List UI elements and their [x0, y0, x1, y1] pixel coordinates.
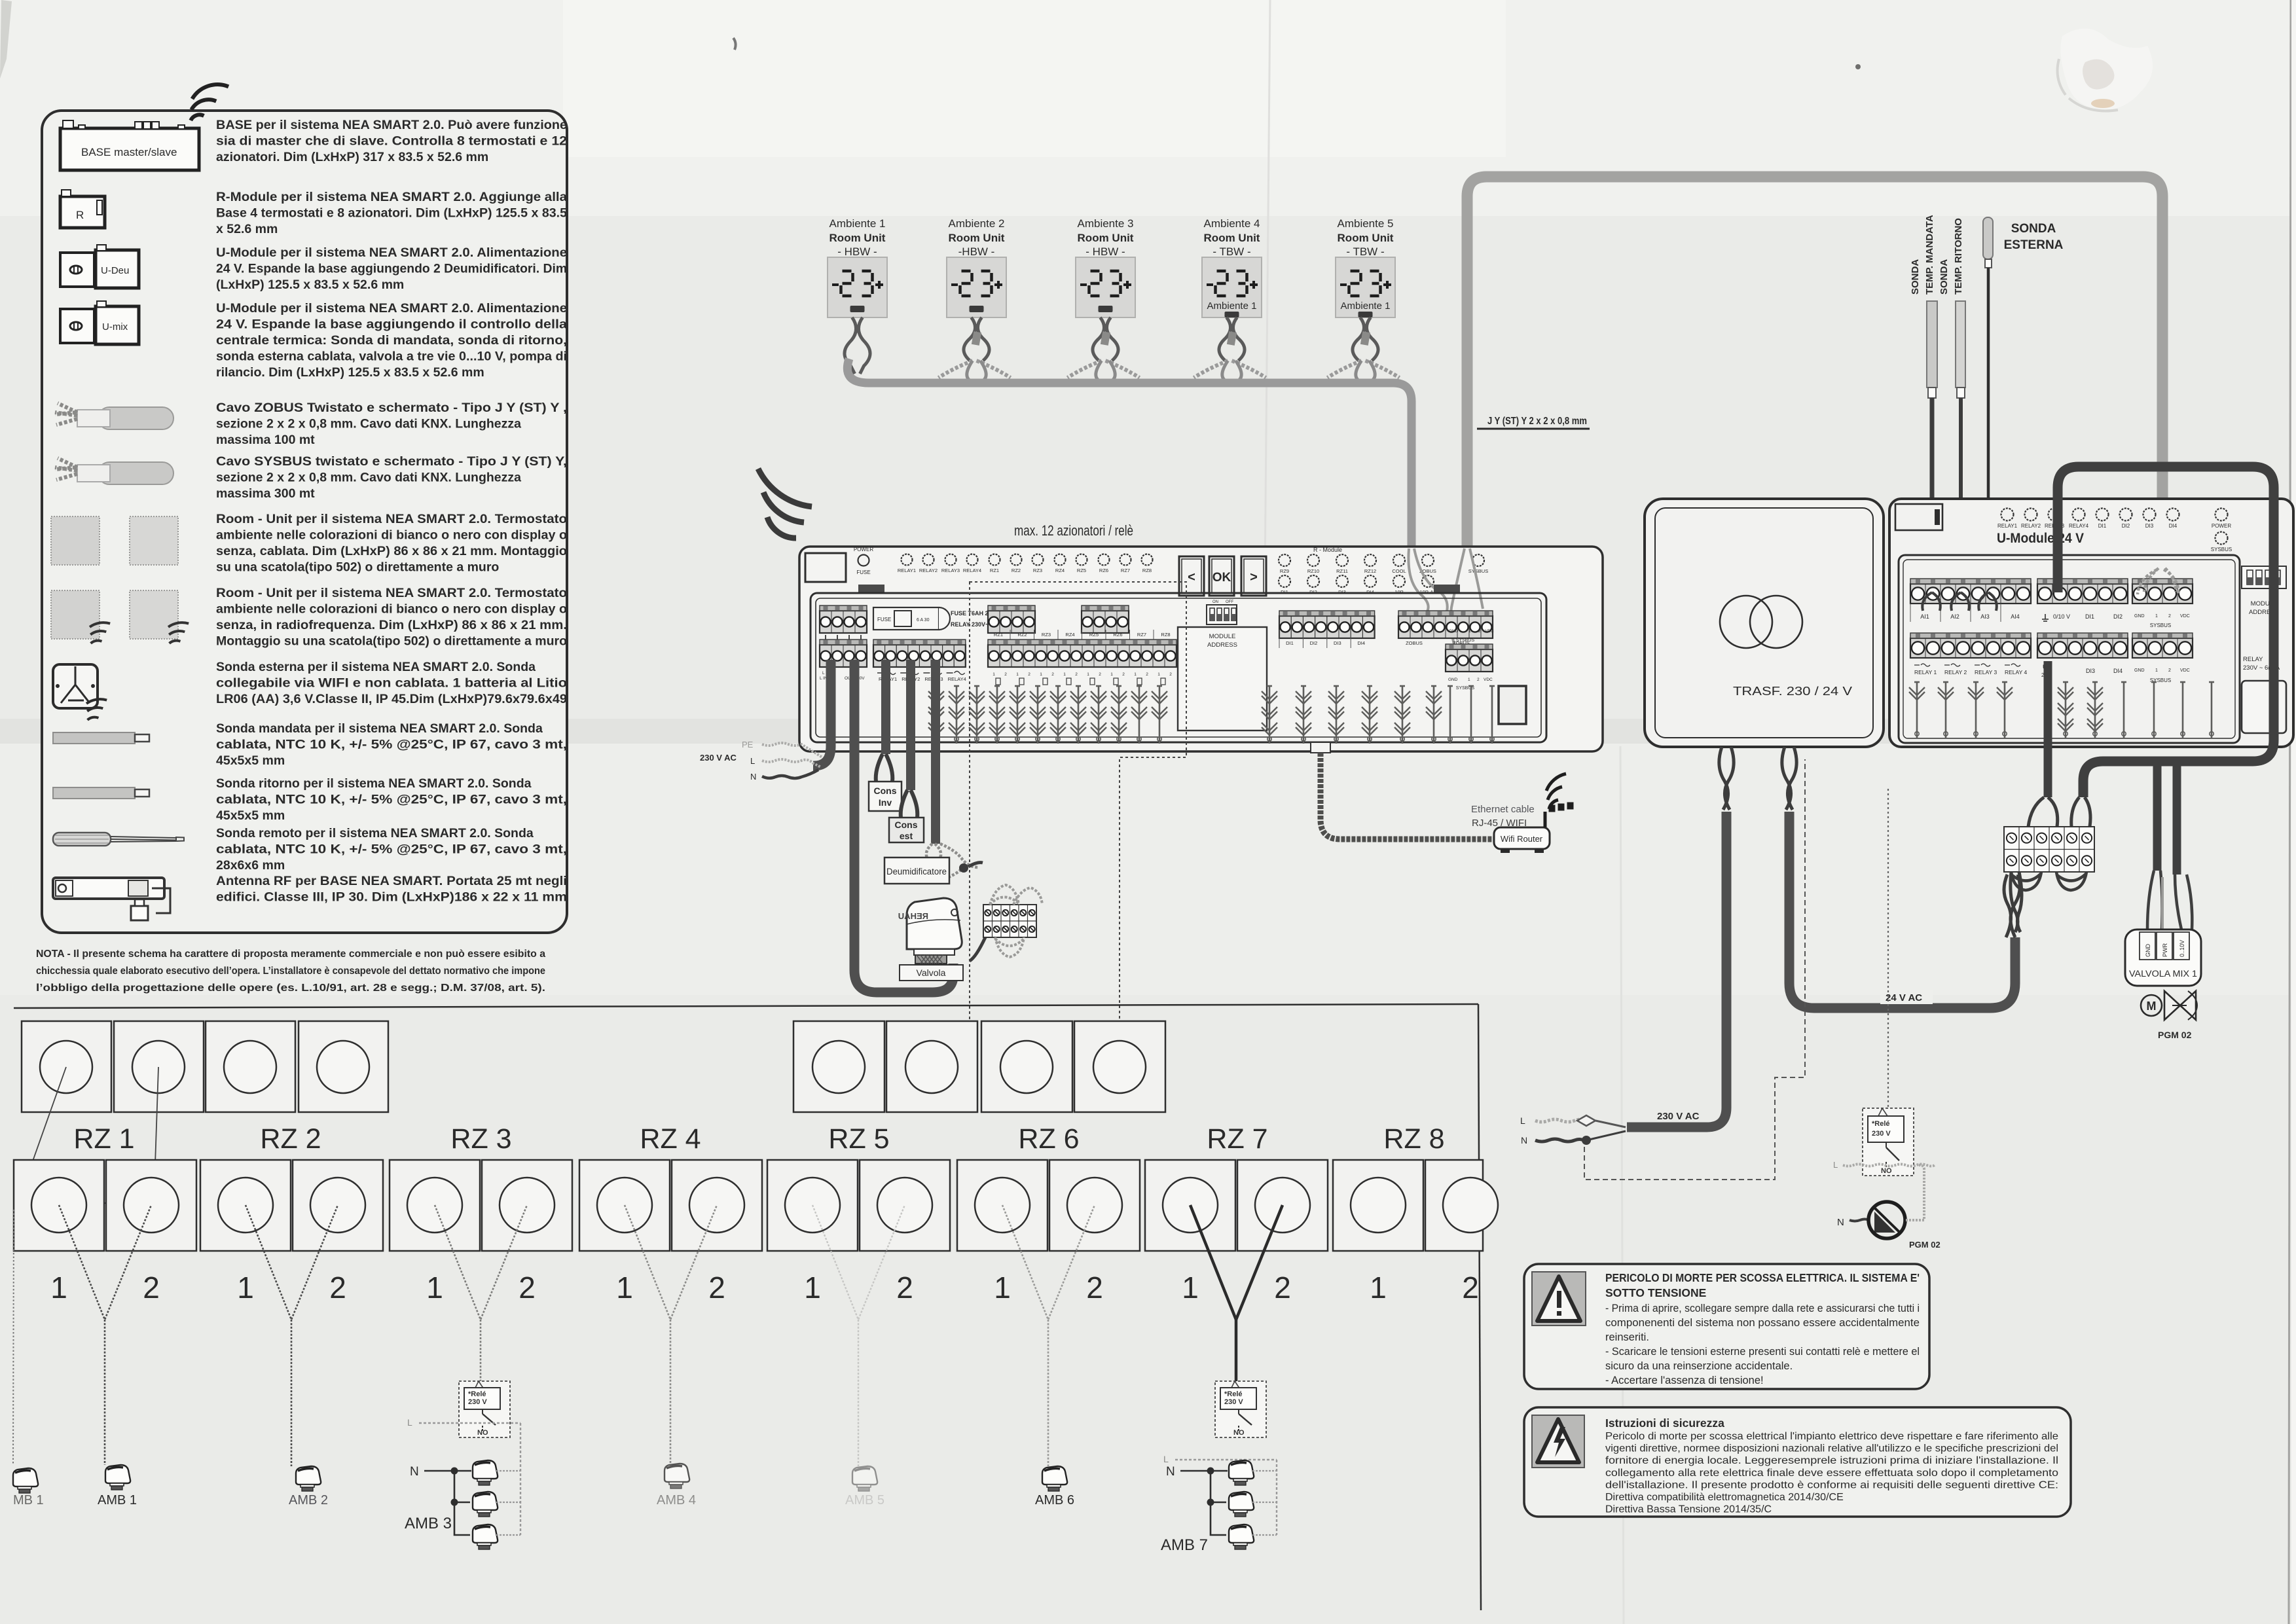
svg-text:dell'istallazione. Il presente: dell'istallazione. Il presente prodotto …	[1605, 1479, 2058, 1490]
svg-text:AMB 3: AMB 3	[405, 1515, 452, 1532]
svg-text:Ethernet cable: Ethernet cable	[1471, 804, 1535, 815]
svg-text:1: 1	[237, 1271, 254, 1305]
svg-text:SYSBUS: SYSBUS	[2211, 547, 2232, 552]
svg-text:RELAY4: RELAY4	[2069, 523, 2089, 529]
svg-text:RZ 8: RZ 8	[1383, 1123, 1444, 1155]
svg-text:Room Unit: Room Unit	[829, 232, 886, 244]
svg-text:RZ8: RZ8	[1142, 568, 1152, 573]
svg-text:GND: GND	[2134, 668, 2145, 673]
svg-text:OFF: OFF	[1226, 600, 1233, 604]
svg-text:FUSE: FUSE	[856, 569, 870, 575]
svg-text:POWER: POWER	[854, 547, 873, 552]
svg-text:(LxHxP) 125.5 x 83.5 x 52.6 mm: (LxHxP) 125.5 x 83.5 x 52.6 mm	[216, 278, 404, 292]
svg-text:Ambiente 4: Ambiente 4	[1204, 217, 1260, 230]
svg-text:RZ1: RZ1	[994, 632, 1003, 638]
svg-text:AI4: AI4	[2011, 613, 2020, 620]
svg-text:1: 1	[1182, 1271, 1199, 1305]
svg-text:GND: GND	[2134, 614, 2145, 619]
svg-text:Cons: Cons	[895, 820, 918, 830]
svg-text:Istruzioni di sicurezza: Istruzioni di sicurezza	[1605, 1416, 1724, 1430]
svg-text:1: 1	[994, 1271, 1011, 1305]
svg-text:L: L	[1163, 1454, 1169, 1464]
svg-text:POWER: POWER	[2212, 523, 2231, 529]
svg-text:DI1: DI1	[2085, 613, 2094, 620]
svg-text:NOTA - Il presente schema ha c: NOTA - Il presente schema ha carattere d…	[36, 948, 545, 960]
svg-text:RZ4: RZ4	[1055, 568, 1065, 573]
svg-text:24 V AC: 24 V AC	[1886, 992, 1922, 1003]
svg-text:1: 1	[1468, 677, 1470, 682]
svg-text:sezione 2 x 2 x 0,8 mm. Cavo d: sezione 2 x 2 x 0,8 mm. Cavo dati KNX. L…	[216, 417, 521, 431]
svg-text:Room - Unit per il sistema NEA: Room - Unit per il sistema NEA SMART 2.0…	[216, 586, 567, 600]
svg-text:senza, in radiofrequenza. Dim: senza, in radiofrequenza. Dim (LxHxP) 86…	[216, 618, 567, 632]
svg-text:24 V. Espande la base aggiunge: 24 V. Espande la base aggiungendo il con…	[216, 317, 567, 332]
svg-text:U-Module per il sistema NEA SM: U-Module per il sistema NEA SMART 2.0. A…	[216, 301, 567, 316]
svg-text:collegabile via WIFI e non cab: collegabile via WIFI e non cablata. 1 ba…	[216, 676, 567, 691]
svg-text:U-Module 24 V: U-Module 24 V	[1997, 531, 2084, 546]
svg-text:VDC: VDC	[2180, 614, 2190, 619]
svg-text:OK: OK	[1212, 571, 1231, 585]
svg-text:Ambiente 3: Ambiente 3	[1078, 217, 1134, 230]
svg-text:1: 1	[616, 1271, 633, 1305]
svg-text:Wifi Router: Wifi Router	[1501, 834, 1543, 844]
svg-text:Direttiva compatibilità elettr: Direttiva compatibilità elettromagnetica…	[1605, 1492, 1844, 1503]
svg-text:AMB 6: AMB 6	[1035, 1493, 1074, 1507]
svg-text:2: 2	[1462, 1271, 1479, 1305]
svg-text:RELAY2: RELAY2	[2021, 523, 2041, 529]
svg-text:VALVOLA MIX 1: VALVOLA MIX 1	[2129, 969, 2197, 979]
svg-text:PERICOLO DI MORTE PER SCOSSA E: PERICOLO DI MORTE PER SCOSSA ELETTRICA. …	[1605, 1271, 1920, 1284]
svg-text:ESTERNA: ESTERNA	[2004, 238, 2064, 252]
svg-text:24 V. Espande la base aggiunge: 24 V. Espande la base aggiungendo 2 Deum…	[216, 262, 567, 276]
svg-text:2: 2	[519, 1271, 536, 1305]
svg-text:RELAY1: RELAY1	[898, 568, 916, 573]
svg-text:Sonda ritorno per il sistema N: Sonda ritorno per il sistema NEA SMART 2…	[216, 776, 532, 791]
svg-text:collegamento alla rete elettri: collegamento alla rete elettrica finale …	[1605, 1468, 2058, 1479]
svg-text:230 V AC: 230 V AC	[700, 753, 737, 763]
svg-text:1: 1	[1110, 672, 1113, 677]
svg-text:2: 2	[1004, 672, 1007, 677]
svg-text:*Relé: *Relé	[1224, 1390, 1243, 1398]
svg-text:2: 2	[1477, 677, 1480, 682]
svg-text:230 V: 230 V	[1224, 1398, 1243, 1406]
svg-text:GND: GND	[2145, 944, 2151, 958]
svg-text:RZ2: RZ2	[1017, 632, 1027, 638]
svg-text:N: N	[1166, 1465, 1175, 1479]
svg-text:U-mix: U-mix	[102, 321, 128, 333]
svg-text:Cavo ZOBUS Twistato e scherm: Cavo ZOBUS Twistato e schermato - Tipo J…	[216, 401, 567, 415]
svg-text:SONDA: SONDA	[1910, 259, 1921, 295]
svg-text:GND: GND	[1449, 629, 1459, 634]
svg-text:R: R	[76, 209, 84, 221]
svg-text:DI4: DI4	[2169, 523, 2178, 529]
svg-text:1: 1	[1016, 672, 1019, 677]
svg-text:AI1: AI1	[1920, 613, 1929, 620]
svg-text:sonda esterna cablata, valvola: sonda esterna cablata, valvola a tre vie…	[216, 350, 567, 364]
svg-text:6 A 30: 6 A 30	[917, 618, 930, 623]
svg-text:Ambiente 1: Ambiente 1	[1207, 300, 1257, 312]
svg-text:VDC: VDC	[1484, 677, 1493, 682]
svg-text:2: 2	[2168, 614, 2171, 619]
svg-text:2: 2	[1122, 672, 1125, 677]
svg-text:cablata, NTC 10 K, +/- 5% @25°: cablata, NTC 10 K, +/- 5% @25°C, IP 67, …	[216, 842, 567, 857]
svg-text:sia di master che di slave. Co: sia di master che di slave. Controlla 8 …	[216, 134, 567, 149]
svg-text:N: N	[750, 772, 756, 782]
svg-text:2: 2	[1099, 672, 1101, 677]
svg-text:1: 1	[993, 672, 995, 677]
svg-text:2: 2	[1146, 672, 1148, 677]
svg-text:ADDRESS: ADDRESS	[1207, 641, 1237, 649]
svg-text:VDC: VDC	[2180, 668, 2190, 673]
svg-text:VDC: VDC	[1485, 629, 1494, 634]
svg-text:DI2: DI2	[2122, 523, 2130, 529]
svg-text:SYSBUS: SYSBUS	[1468, 568, 1488, 574]
svg-text:vigenti direttive, normee disp: vigenti direttive, normee disposizioni n…	[1605, 1443, 2058, 1454]
svg-text:ambiente nelle colorazioni di: ambiente nelle colorazioni di bianco o n…	[216, 602, 567, 617]
svg-text:RELAY1: RELAY1	[1997, 523, 2018, 529]
svg-text:RZ 5: RZ 5	[828, 1123, 889, 1155]
svg-text:230 V: 230 V	[468, 1398, 487, 1406]
svg-text:M: M	[2147, 1000, 2157, 1013]
svg-text:- Scaricare le tensioni estern: - Scaricare le tensioni esterne presenti…	[1605, 1346, 1920, 1358]
svg-text:45x5x5 mm: 45x5x5 mm	[216, 753, 285, 768]
svg-text:RELAY4: RELAY4	[948, 676, 966, 682]
svg-text:RZ6: RZ6	[1113, 632, 1122, 638]
svg-text:GND: GND	[1448, 677, 1458, 682]
svg-text:TRASF. 230 / 24 V: TRASF. 230 / 24 V	[1733, 685, 1852, 698]
svg-text:Room Unit: Room Unit	[1338, 232, 1394, 244]
svg-text:RZ10: RZ10	[1307, 568, 1319, 574]
svg-text:rilancio. Dim (LxHxP) 125.5 x: rilancio. Dim (LxHxP) 125.5 x 83.5 x 52.…	[216, 365, 484, 380]
svg-text:RZ 6: RZ 6	[1018, 1123, 1079, 1155]
svg-text:2: 2	[896, 1271, 913, 1305]
svg-text:RZ5: RZ5	[1089, 632, 1099, 638]
svg-text:1: 1	[1063, 672, 1066, 677]
svg-text:DI4: DI4	[1357, 640, 1365, 646]
svg-text:N: N	[1521, 1135, 1527, 1146]
svg-text:FUSE: FUSE	[877, 617, 891, 623]
svg-text:Ambiente 5: Ambiente 5	[1338, 217, 1394, 230]
svg-text:1: 1	[426, 1271, 443, 1305]
svg-text:Antenna RF per BASE NEA SMART.: Antenna RF per BASE NEA SMART. Portata 2…	[216, 874, 567, 888]
svg-text:RELAY: RELAY	[2243, 656, 2263, 663]
svg-text:sezione 2 x 2 x 0,8 mm. Cavo d: sezione 2 x 2 x 0,8 mm. Cavo dati KNX. L…	[216, 471, 521, 485]
svg-text:RZ7: RZ7	[1137, 632, 1146, 638]
svg-text:massima 300 mt: massima 300 mt	[216, 486, 315, 501]
svg-text:DI3: DI3	[2145, 523, 2154, 529]
svg-text:2: 2	[1086, 1271, 1103, 1305]
svg-text:0..10V: 0..10V	[2179, 940, 2185, 957]
svg-text:RZ 2: RZ 2	[260, 1123, 321, 1155]
svg-text:1: 1	[1134, 672, 1137, 677]
svg-text:SYSBUS: SYSBUS	[1456, 638, 1475, 643]
svg-text:R-Module per il sistema NEA SM: R-Module per il sistema NEA SMART 2.0. A…	[216, 190, 567, 204]
svg-text:Sonda remoto per il sistema NE: Sonda remoto per il sistema NEA SMART 2.…	[216, 826, 534, 840]
svg-text:2: 2	[1051, 672, 1054, 677]
svg-text:1: 1	[1087, 672, 1089, 677]
svg-text:BASE per il sistema NEA SMART: BASE per il sistema NEA SMART 2.0. Può a…	[216, 118, 567, 132]
svg-text:0/10 V: 0/10 V	[2053, 613, 2070, 620]
svg-text:2: 2	[2168, 668, 2171, 673]
svg-text:230 V: 230 V	[1872, 1130, 1891, 1138]
svg-text:U-Deu: U-Deu	[101, 265, 129, 276]
svg-text:- HBW -: - HBW -	[837, 245, 877, 258]
svg-text:PGM 02: PGM 02	[2158, 1030, 2192, 1040]
svg-text:sicuro da una reinserzione acc: sicuro da una reinserzione accidentale.	[1605, 1360, 1793, 1372]
svg-text:Cons: Cons	[874, 785, 897, 796]
svg-text:AI2: AI2	[1950, 613, 1959, 620]
svg-text:RELAY 1: RELAY 1	[1914, 669, 1937, 676]
svg-text:<: <	[1188, 570, 1195, 585]
svg-text:RELAY3: RELAY3	[941, 568, 960, 573]
svg-text:*Relé: *Relé	[468, 1390, 486, 1398]
svg-text:RZ3: RZ3	[1042, 632, 1051, 638]
svg-text:RELAY2: RELAY2	[919, 568, 938, 573]
svg-text:RZ5: RZ5	[1077, 568, 1086, 573]
svg-text:LR06 (AA) 3,6 V.Classe II, IP: LR06 (AA) 3,6 V.Classe II, IP 45.Dim (Lx…	[216, 692, 567, 706]
svg-text:1: 1	[1370, 1271, 1387, 1305]
svg-text:reinseriti.: reinseriti.	[1605, 1331, 1649, 1343]
svg-text:AMB 2: AMB 2	[289, 1493, 328, 1507]
svg-text:Room Unit: Room Unit	[1204, 232, 1260, 244]
svg-text:RZ11: RZ11	[1336, 568, 1348, 574]
svg-text:AMB 1: AMB 1	[98, 1493, 137, 1507]
svg-text:DI2: DI2	[1310, 640, 1318, 646]
svg-text:max. 12 azionatori / relè: max. 12 azionatori / relè	[1014, 522, 1133, 539]
svg-text:ambiente nelle colorazioni di: ambiente nelle colorazioni di bianco o n…	[216, 528, 567, 543]
svg-text:DI3: DI3	[1334, 640, 1341, 646]
svg-text:COOL: COOL	[1392, 568, 1406, 574]
svg-text:componenenti del sistema non p: componenenti del sistema non possano ess…	[1605, 1317, 1920, 1329]
svg-text:x 52.6 mm: x 52.6 mm	[216, 222, 278, 236]
svg-text:REHAU: REHAU	[898, 911, 928, 921]
svg-text:RZ2: RZ2	[1011, 568, 1021, 573]
svg-text:BASE master/slave: BASE master/slave	[81, 146, 177, 158]
svg-text:SONDA: SONDA	[1939, 259, 1950, 295]
svg-text:RELAY 4: RELAY 4	[2005, 669, 2027, 676]
svg-text:SYSBUS: SYSBUS	[2150, 623, 2171, 628]
svg-text:cablata, NTC 10 K, +/- 5% @25°: cablata, NTC 10 K, +/- 5% @25°C, IP 67, …	[216, 793, 567, 807]
svg-text:RZ8: RZ8	[1161, 632, 1170, 638]
svg-text:L: L	[750, 756, 755, 766]
svg-text:PWR: PWR	[2162, 943, 2168, 957]
svg-text:massima 100 mt: massima 100 mt	[216, 433, 315, 447]
svg-text:MB 1: MB 1	[13, 1493, 44, 1507]
svg-text:2: 2	[1169, 672, 1172, 677]
svg-text:N: N	[1837, 1217, 1844, 1228]
svg-text:RZ4: RZ4	[1065, 632, 1074, 638]
svg-text:- HBW -: - HBW -	[1085, 245, 1125, 258]
svg-text:U-Module per il sistema NEA SM: U-Module per il sistema NEA SMART 2.0. A…	[216, 245, 567, 260]
svg-text:PE: PE	[742, 740, 754, 749]
svg-text:Inv: Inv	[879, 797, 892, 808]
svg-text:2: 2	[708, 1271, 725, 1305]
svg-text:Room Unit: Room Unit	[949, 232, 1005, 244]
svg-text:RELAY 3: RELAY 3	[1975, 669, 1997, 676]
svg-text:2: 2	[143, 1271, 160, 1305]
svg-text:Base 4 termostati e 8 azionato: Base 4 termostati e 8 azionatori. Dim (L…	[216, 206, 567, 221]
svg-text:1: 1	[804, 1271, 821, 1305]
svg-text:Room - Unit per il sistema NEA: Room - Unit per il sistema NEA SMART 2.0…	[216, 512, 567, 526]
svg-text:Cavo SYSBUS twistato e scherm: Cavo SYSBUS twistato e schermato - Tipo …	[216, 454, 567, 469]
svg-text:RZ 7: RZ 7	[1207, 1123, 1267, 1155]
svg-text:Pericolo di morte per scossa e: Pericolo di morte per scossa elettrical …	[1605, 1431, 2058, 1442]
svg-text:RZ 3: RZ 3	[450, 1123, 511, 1155]
svg-text:NO: NO	[477, 1429, 488, 1437]
svg-text:RZ 1: RZ 1	[73, 1123, 134, 1155]
svg-text:Sonda esterna per il sistema N: Sonda esterna per il sistema NEA SMART 2…	[216, 660, 536, 674]
svg-text:RZ7: RZ7	[1121, 568, 1130, 573]
svg-text:AMB 4: AMB 4	[657, 1493, 696, 1507]
svg-text:L: L	[1520, 1115, 1525, 1126]
svg-text:J Y (ST) Y 2 x 2 x 0,8 mm: J Y (ST) Y 2 x 2 x 0,8 mm	[1487, 416, 1587, 427]
svg-text:DI2: DI2	[2113, 613, 2123, 620]
svg-text:L: L	[822, 671, 825, 676]
svg-text:DI1: DI1	[1286, 640, 1294, 646]
svg-text:RELAY 2: RELAY 2	[1944, 669, 1967, 676]
svg-text:- Prima di aprire, scollegare: - Prima di aprire, scollegare sempre dal…	[1605, 1303, 1920, 1314]
svg-text:SOTTO TENSIONE: SOTTO TENSIONE	[1605, 1286, 1706, 1299]
svg-text:TEMP. MANDATA: TEMP. MANDATA	[1924, 215, 1935, 295]
svg-text:L: L	[407, 1417, 412, 1428]
svg-text:PGM 02: PGM 02	[1909, 1240, 1941, 1250]
svg-text:Ambiente 2: Ambiente 2	[949, 217, 1005, 230]
svg-text:cablata, NTC 10 K, +/- 5% @25°: cablata, NTC 10 K, +/- 5% @25°C, IP 67, …	[216, 738, 567, 752]
svg-text:*Relé: *Relé	[1872, 1120, 1890, 1128]
svg-text:28x6x6 mm: 28x6x6 mm	[216, 858, 285, 873]
svg-text:1: 1	[1040, 672, 1042, 677]
svg-text:DI1: DI1	[2098, 523, 2107, 529]
svg-text:SONDA: SONDA	[2011, 222, 2056, 236]
svg-text:2: 2	[1274, 1271, 1291, 1305]
svg-text:RZ9: RZ9	[1280, 568, 1289, 574]
svg-text:RZ6: RZ6	[1099, 568, 1108, 573]
svg-text:TEMP. RITORNO: TEMP. RITORNO	[1953, 218, 1964, 295]
svg-text:45x5x5 mm: 45x5x5 mm	[216, 808, 285, 823]
svg-text:centrale termica: Sonda di man: centrale termica: Sonda di mandata, sond…	[216, 333, 567, 348]
svg-text:2: 2	[1478, 629, 1481, 634]
svg-text:RZ12: RZ12	[1364, 568, 1376, 574]
svg-text:1: 1	[1468, 629, 1471, 634]
svg-text:fornitore di energia locale. L: fornitore di energia locale. Leggeresemp…	[1605, 1455, 2058, 1466]
svg-text:MODULE: MODULE	[1209, 633, 1236, 640]
svg-text:2: 2	[329, 1271, 346, 1305]
svg-text:1: 1	[1157, 672, 1160, 677]
svg-text:2: 2	[1028, 672, 1030, 677]
svg-text:NO: NO	[1881, 1167, 1892, 1175]
svg-text:RZ3: RZ3	[1033, 568, 1042, 573]
svg-text:DI4: DI4	[2113, 668, 2123, 674]
svg-text:- Accertare l'assenza di tensi: - Accertare l'assenza di tensione!	[1605, 1375, 1764, 1386]
svg-text:ZOBUS: ZOBUS	[1406, 640, 1423, 646]
svg-text:Valvola: Valvola	[917, 967, 946, 978]
svg-text:-HBW -: -HBW -	[958, 245, 995, 258]
svg-text:Ambiente 1: Ambiente 1	[829, 217, 886, 230]
svg-text:ON: ON	[1212, 600, 1218, 604]
svg-text:AMB 5: AMB 5	[845, 1493, 884, 1507]
svg-text:Room Unit: Room Unit	[1078, 232, 1134, 244]
svg-text:l’obbligo della progettazione: l’obbligo della progettazione delle oper…	[36, 983, 545, 994]
svg-text:2: 2	[1075, 672, 1078, 677]
svg-text:N: N	[410, 1465, 419, 1479]
svg-text:Deumidificatore: Deumidificatore	[886, 867, 947, 876]
svg-text:senza, cablata. Dim (LxHxP) 86: senza, cablata. Dim (LxHxP) 86 x 86 x 21…	[216, 544, 567, 558]
svg-text:NO: NO	[1233, 1429, 1245, 1437]
svg-text:- TBW -: - TBW -	[1212, 245, 1250, 258]
svg-text:est: est	[900, 831, 913, 841]
svg-text:L: L	[1833, 1160, 1838, 1170]
svg-text:1: 1	[50, 1271, 67, 1305]
svg-text:230 V AC: 230 V AC	[1657, 1111, 1700, 1122]
svg-text:su una scatola(tipo 502) o dir: su una scatola(tipo 502) o direttamente …	[216, 560, 499, 575]
svg-text:Sonda mandata per il sistema N: Sonda mandata per il sistema NEA SMART 2…	[216, 721, 543, 736]
svg-text:Montaggio su una scatola(tipo: Montaggio su una scatola(tipo 502) o dir…	[216, 634, 567, 649]
svg-text:chicchessia quale elaborato es: chicchessia quale elaborato esecutivo de…	[36, 965, 545, 977]
svg-text:1: 1	[2155, 614, 2158, 619]
svg-text:azionatori. Dim (LxHxP) 317 x: azionatori. Dim (LxHxP) 317 x 83.5 x 52.…	[216, 150, 488, 164]
svg-text:RELAY4: RELAY4	[963, 568, 981, 573]
svg-text:AMB 7: AMB 7	[1161, 1536, 1208, 1554]
svg-text:1: 1	[2155, 668, 2158, 673]
svg-text:R - Module: R - Module	[1313, 547, 1342, 553]
svg-text:Ambiente 1: Ambiente 1	[1341, 300, 1391, 312]
svg-text:edifici. Classe III, IP 30. Di: edifici. Classe III, IP 30. Dim (LxHxP)1…	[216, 890, 567, 905]
svg-text:- TBW -: - TBW -	[1346, 245, 1384, 258]
svg-text:RZ 4: RZ 4	[640, 1123, 701, 1155]
svg-text:DI3: DI3	[2086, 668, 2095, 674]
svg-text:AI3: AI3	[1980, 613, 1990, 620]
svg-text:RZ1: RZ1	[990, 568, 999, 573]
svg-text:>: >	[1250, 570, 1258, 585]
svg-text:Direttiva Bassa Tensione 2014: Direttiva Bassa Tensione 2014/35/C	[1605, 1504, 1772, 1515]
